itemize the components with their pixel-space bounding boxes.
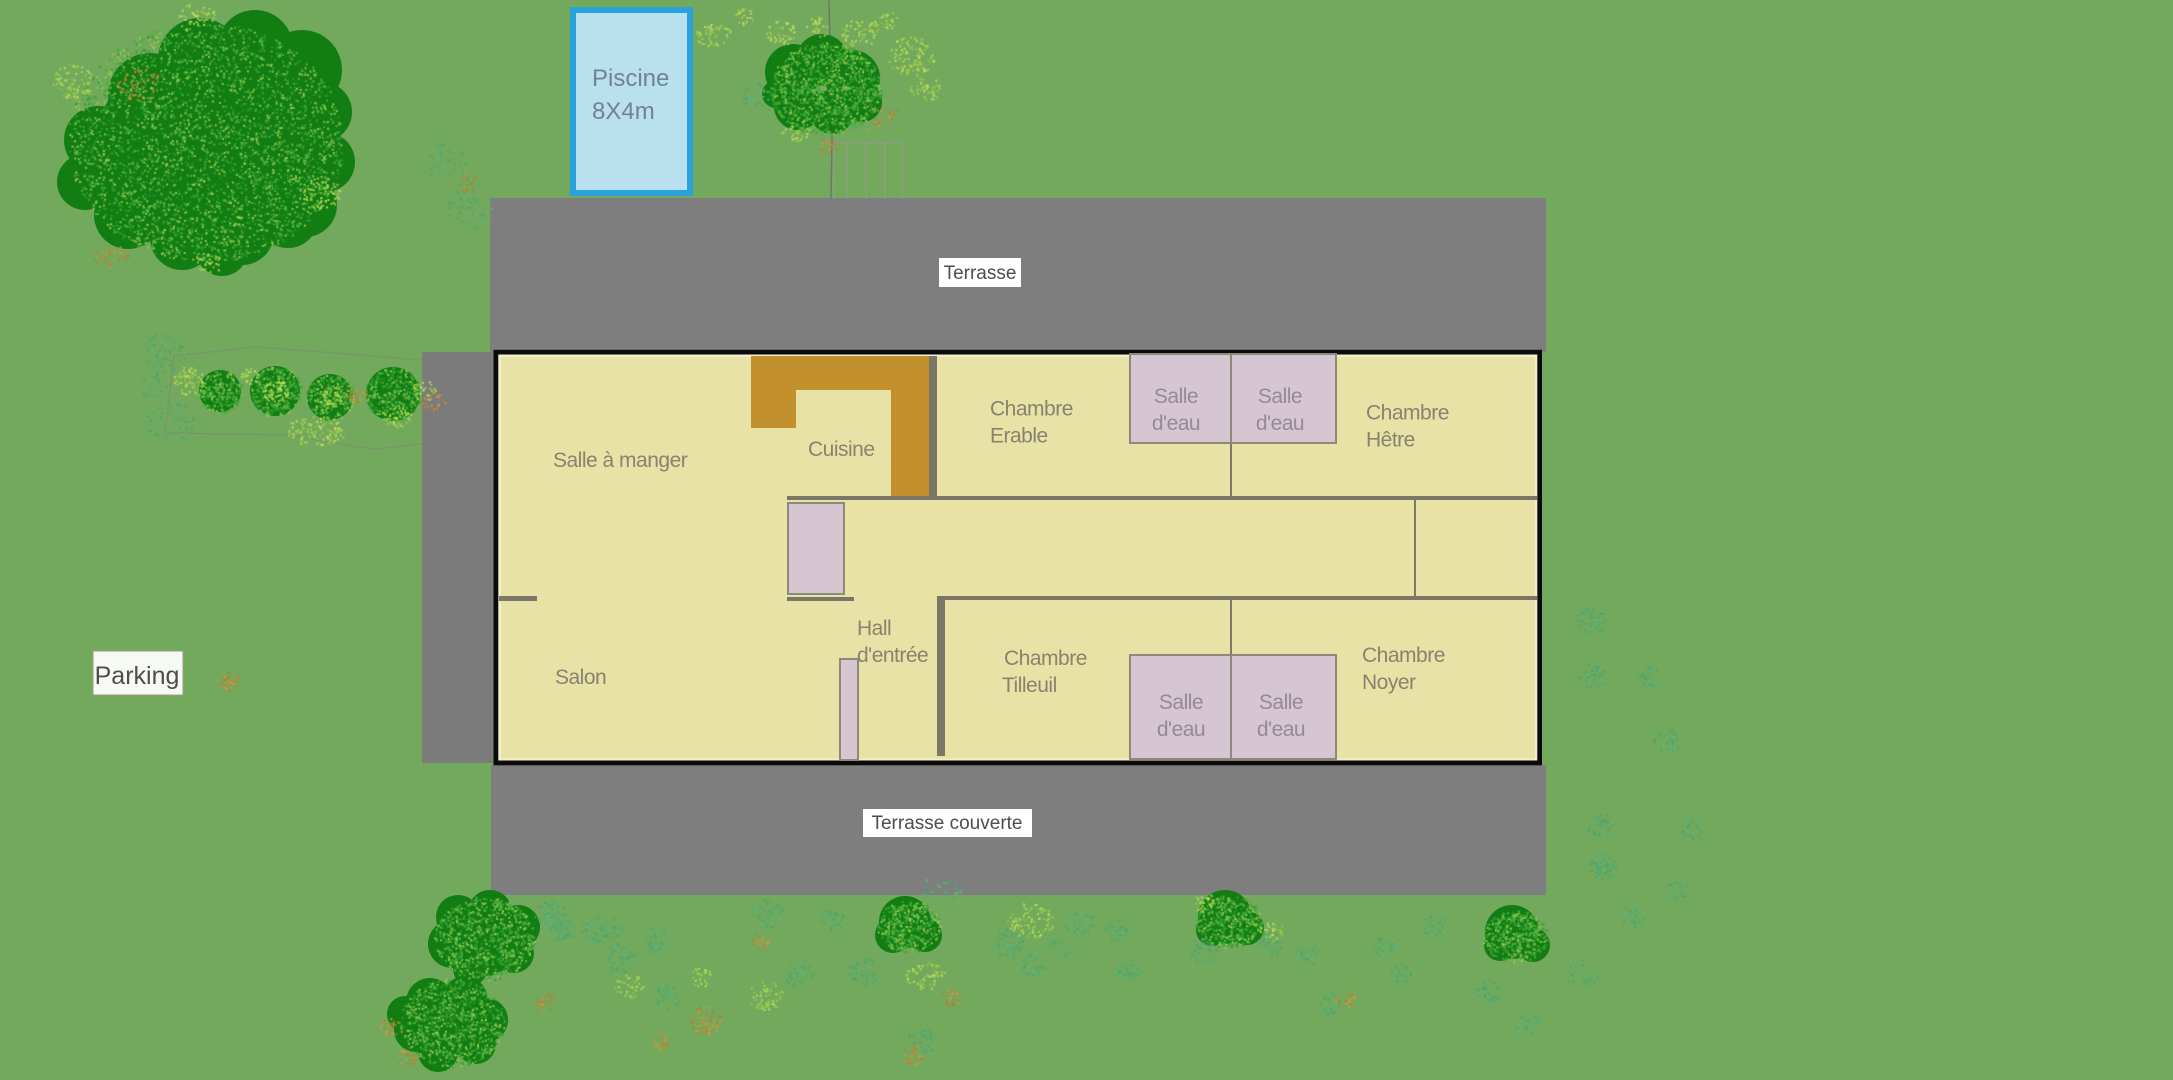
svg-text:Piscine: Piscine	[592, 65, 669, 92]
svg-text:Salon: Salon	[555, 666, 606, 689]
svg-text:Terrasse couverte: Terrasse couverte	[871, 813, 1022, 834]
svg-text:Cuisine: Cuisine	[808, 438, 875, 461]
svg-text:Salle à manger: Salle à manger	[553, 449, 688, 472]
svg-text:Terrasse: Terrasse	[944, 263, 1017, 284]
svg-text:Parking: Parking	[95, 662, 180, 690]
svg-text:8X4m: 8X4m	[592, 98, 655, 125]
